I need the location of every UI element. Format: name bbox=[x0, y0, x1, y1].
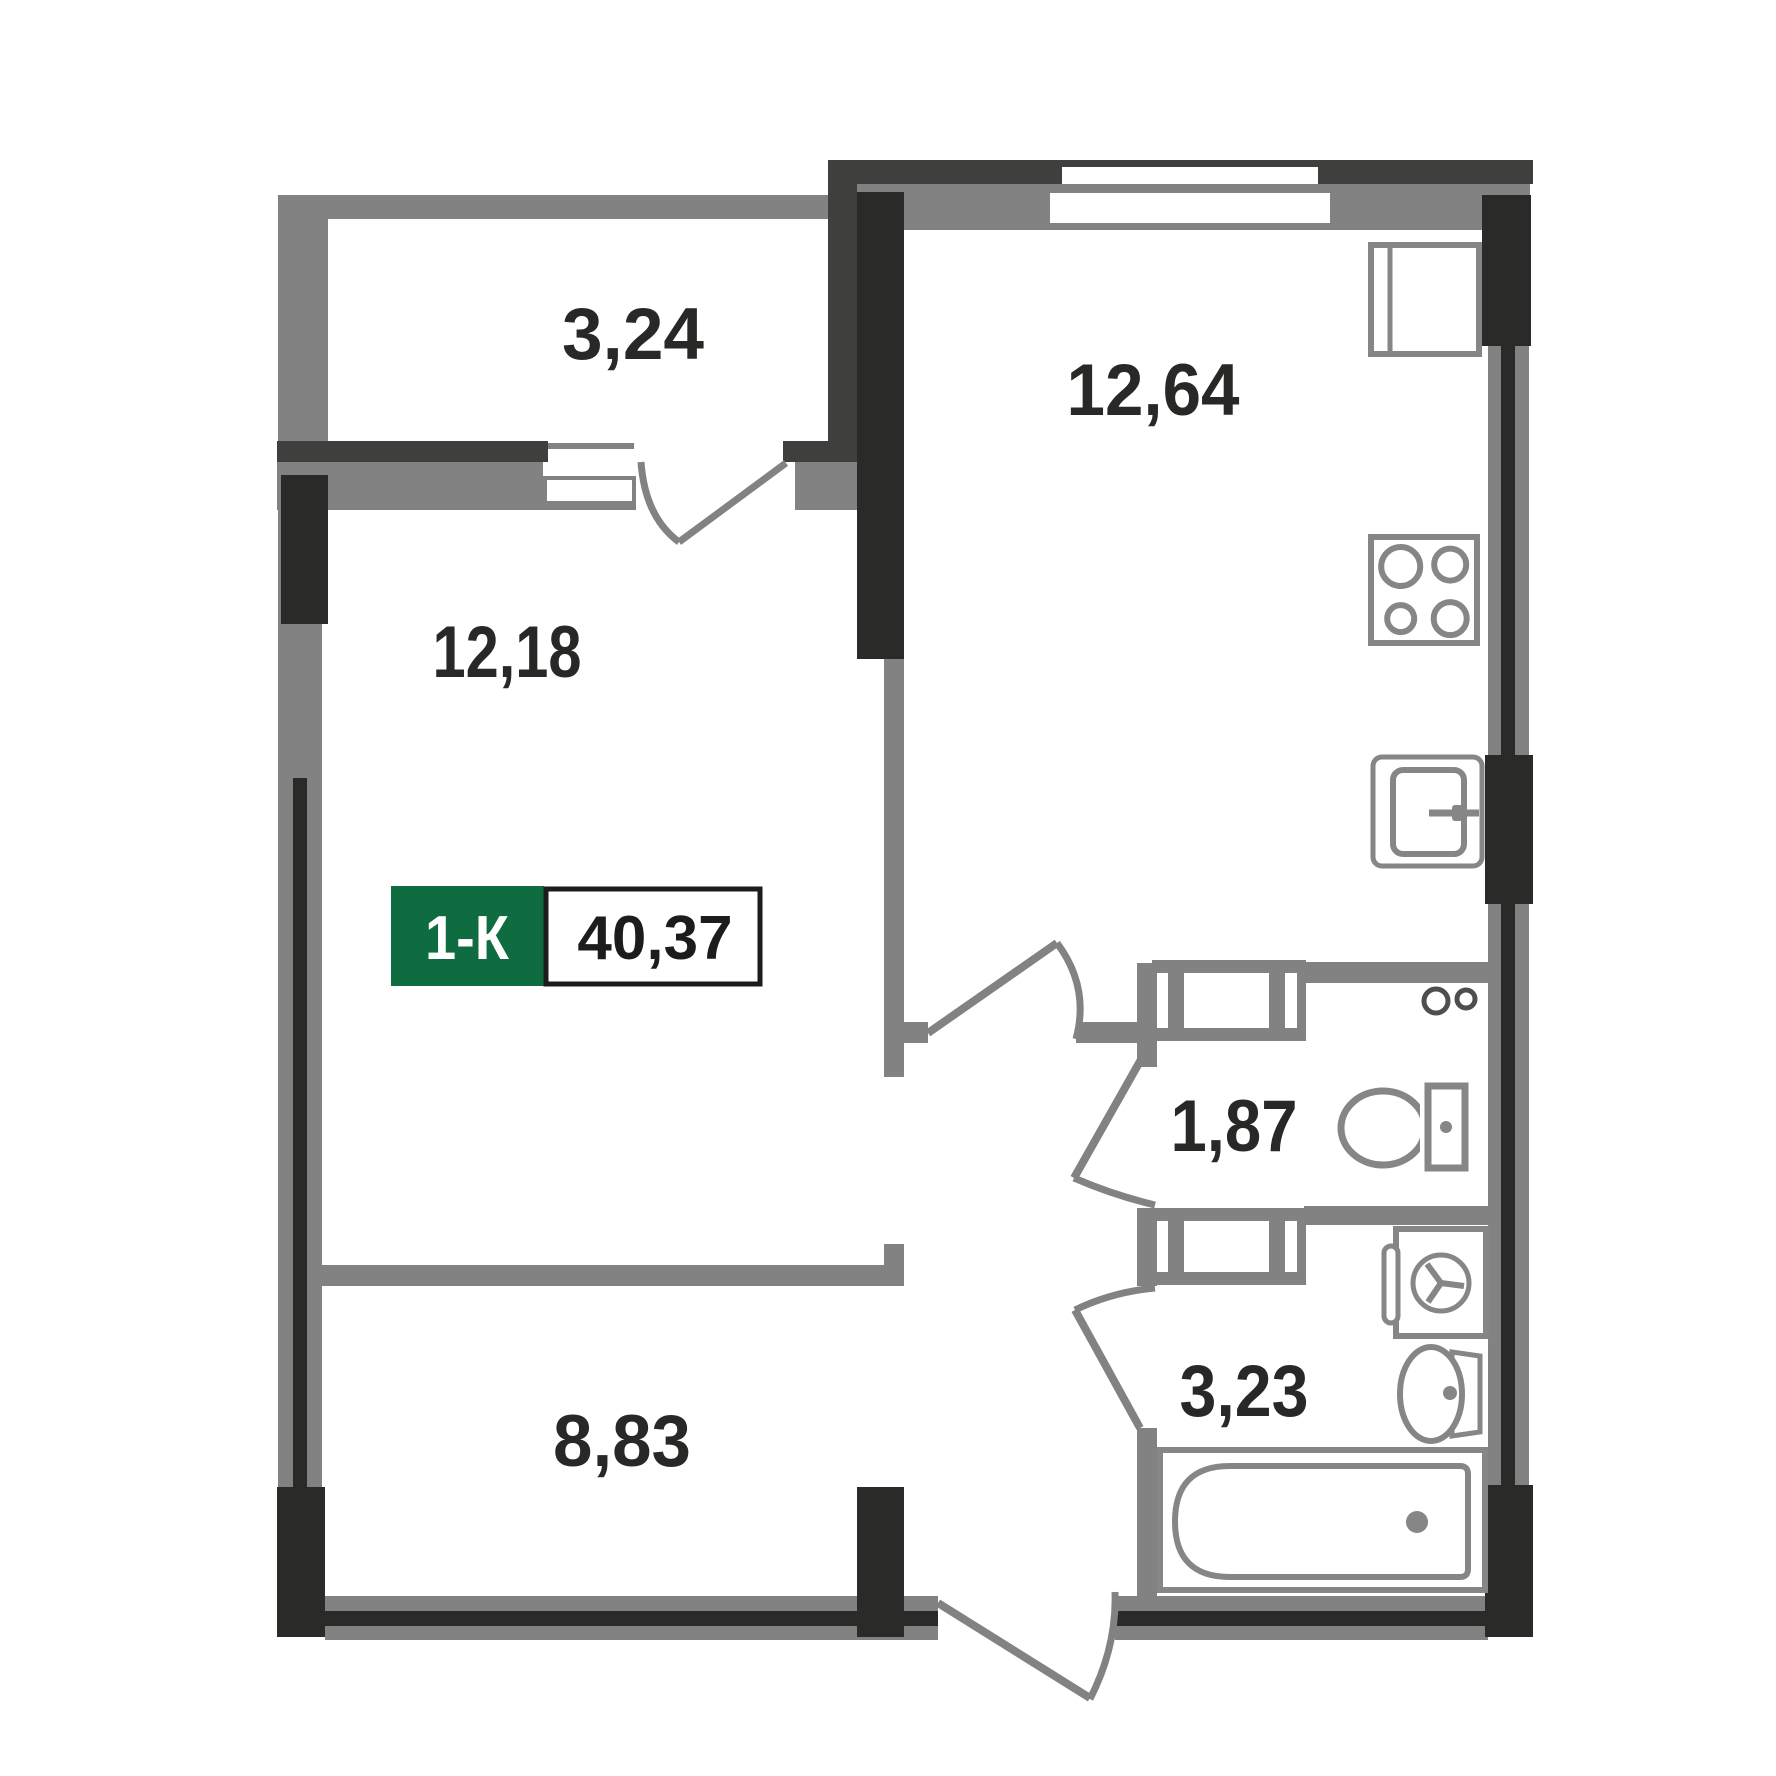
svg-text:40,37: 40,37 bbox=[577, 904, 732, 973]
svg-text:8,83: 8,83 bbox=[553, 1401, 691, 1482]
svg-text:3,23: 3,23 bbox=[1179, 1350, 1308, 1432]
svg-text:1,87: 1,87 bbox=[1171, 1085, 1298, 1167]
svg-text:3,24: 3,24 bbox=[562, 294, 704, 375]
svg-text:1-К: 1-К bbox=[425, 903, 510, 972]
svg-text:12,18: 12,18 bbox=[432, 612, 581, 693]
svg-text:12,64: 12,64 bbox=[1067, 350, 1240, 431]
